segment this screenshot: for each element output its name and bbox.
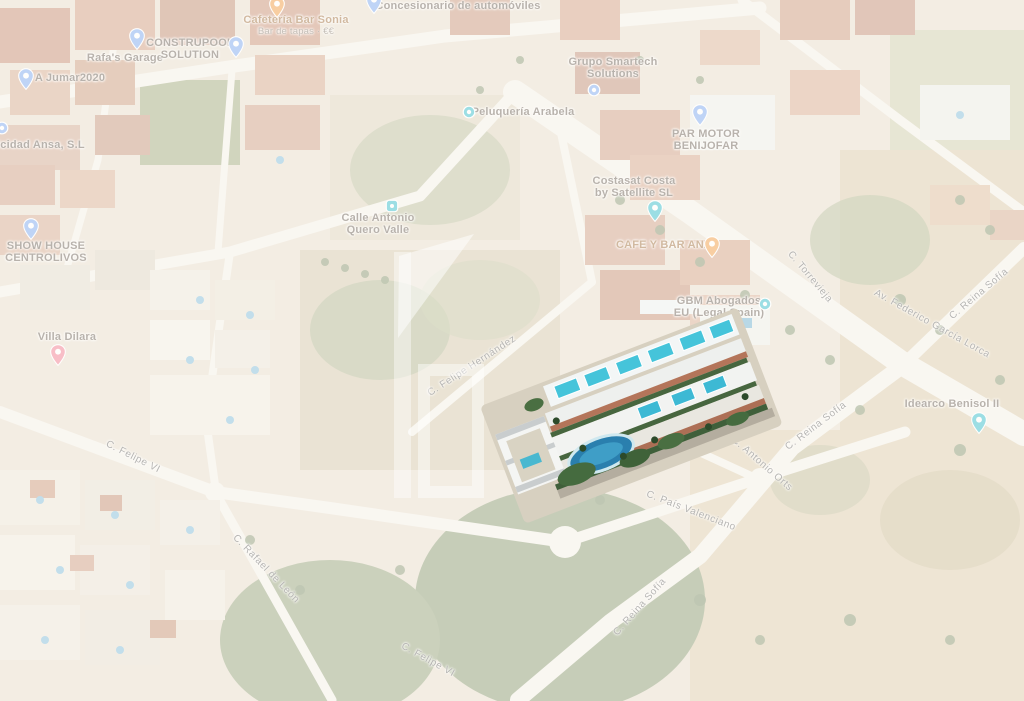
street-label: C. País Valenciano [645, 489, 738, 533]
street-label: C. Torrevieja [785, 249, 834, 305]
concesionario-de-automoviles-pin-icon[interactable] [366, 0, 382, 14]
street-label: C. Reina Sofía [783, 400, 848, 453]
poi-label-line: EU (Legal Spain) [674, 307, 765, 319]
poi-label-line: SOLUTION [146, 49, 234, 61]
map-pin-icon [692, 104, 708, 126]
poi-label-line: A Jumar2020 [35, 72, 105, 84]
street-label: C. Felipe Hernández [426, 333, 518, 398]
gbm-abogados-pin-icon[interactable] [759, 298, 772, 311]
map-pin-icon [129, 28, 145, 50]
show-house-centrolivos-pin-icon[interactable] [23, 218, 39, 240]
poi-label-line: Grupo Smartech [569, 56, 658, 68]
poi-label-par-motor-benijofar[interactable]: PAR MOTORBENIJOFAR [672, 128, 740, 153]
villa-dilara-pin-icon[interactable] [50, 344, 66, 366]
map-pin-icon [704, 236, 720, 258]
map-pin-icon [18, 68, 34, 90]
poi-label-show-house-centrolivos[interactable]: SHOW HOUSECENTROLIVOS [5, 240, 87, 265]
poi-label-line: Villa Dilara [38, 331, 96, 343]
map-pin-icon [971, 412, 987, 434]
street-label: C. Rafael de León [231, 533, 302, 606]
cafeteria-bar-sonia-pin-icon[interactable] [269, 0, 285, 18]
map-pin-icon [366, 0, 382, 14]
street-label: C. Felipe VI [399, 641, 456, 679]
poi-label-peluqueria-arabela[interactable]: Peluquería Arabela [472, 106, 575, 118]
grupo-smartech-solutions-pin-icon[interactable] [588, 84, 601, 97]
poi-label-line: Quero Valle [341, 224, 414, 236]
poi-label-line: Costasat Costa [593, 175, 676, 187]
poi-label-gbm-abogados[interactable]: GBM AbogadosEU (Legal Spain) [674, 295, 765, 320]
poi-label-calle-antonio-quero-valle[interactable]: Calle AntonioQuero Valle [341, 212, 414, 237]
street-label: C. Felipe VI [104, 439, 162, 476]
poi-label-line: Concesionario de automóviles [375, 0, 540, 12]
map-pin-icon [269, 0, 285, 18]
poi-label-line: by Satellite SL [593, 187, 676, 199]
poi-label-grupo-smartech-solutions[interactable]: Grupo SmartechSolutions [569, 56, 658, 81]
poi-label-line: GBM Abogados [674, 295, 765, 307]
poi-label-line: CONSTRUPOOL [146, 37, 234, 49]
poi-label-line: CENTROLIVOS [5, 252, 87, 264]
poi-label-electricidad-ansa[interactable]: Electricidad Ansa, S.L [0, 139, 85, 151]
poi-label-line: Cafetería Bar Sonia [243, 14, 348, 26]
poi-dot-icon [759, 298, 772, 311]
map-pin-icon [228, 36, 244, 58]
poi-dot-icon [0, 122, 9, 135]
poi-square-icon [386, 200, 399, 213]
calle-antonio-quero-valle-pin-icon[interactable] [386, 200, 399, 213]
poi-label-a-jumar2020[interactable]: A Jumar2020 [35, 72, 105, 84]
peluqueria-arabela-pin-icon[interactable] [463, 106, 476, 119]
poi-dot-icon [588, 84, 601, 97]
map-labels-layer: Cafetería Bar SoniaBar de tapas · €€Conc… [0, 0, 1024, 701]
poi-label-cafeteria-bar-sonia[interactable]: Cafetería Bar SoniaBar de tapas · €€ [243, 14, 348, 38]
idearco-benisol-ii-pin-icon[interactable] [971, 412, 987, 434]
map-pin-icon [647, 200, 663, 222]
par-motor-benijofar-pin-icon[interactable] [692, 104, 708, 126]
rafas-garage-pin-icon[interactable] [129, 28, 145, 50]
poi-label-line: SHOW HOUSE [5, 240, 87, 252]
poi-label-villa-dilara[interactable]: Villa Dilara [38, 331, 96, 343]
poi-label-cafe-y-bar-ana[interactable]: CAFE Y BAR ANA [616, 239, 712, 251]
costasat-costa-by-satellite-pin-icon[interactable] [647, 200, 663, 222]
street-label: C. Reina Sofía [947, 266, 1010, 322]
poi-label-subtitle: Bar de tapas · €€ [243, 27, 348, 38]
cafe-y-bar-ana-pin-icon[interactable] [704, 236, 720, 258]
poi-label-idearco-benisol-ii[interactable]: Idearco Benisol II [905, 398, 1000, 410]
a-jumar2020-pin-icon[interactable] [18, 68, 34, 90]
poi-label-construpool-solution[interactable]: CONSTRUPOOLSOLUTION [146, 37, 234, 62]
poi-label-line: Idearco Benisol II [905, 398, 1000, 410]
street-label: C. Reina Sofía [611, 576, 668, 638]
construpool-solution-pin-icon[interactable] [228, 36, 244, 58]
poi-label-line: Peluquería Arabela [472, 106, 575, 118]
poi-label-line: Electricidad Ansa, S.L [0, 139, 85, 151]
poi-label-concesionario-de-automoviles[interactable]: Concesionario de automóviles [375, 0, 540, 12]
poi-label-line: Solutions [569, 68, 658, 80]
map-pin-icon [50, 344, 66, 366]
poi-label-costasat-costa-by-satellite[interactable]: Costasat Costaby Satellite SL [593, 175, 676, 200]
poi-dot-icon [463, 106, 476, 119]
map-pin-icon [23, 218, 39, 240]
poi-label-line: CAFE Y BAR ANA [616, 239, 712, 251]
electricidad-ansa-pin-icon[interactable] [0, 122, 9, 135]
poi-label-line: Calle Antonio [341, 212, 414, 224]
poi-label-line: BENIJOFAR [672, 140, 740, 152]
poi-label-line: PAR MOTOR [672, 128, 740, 140]
